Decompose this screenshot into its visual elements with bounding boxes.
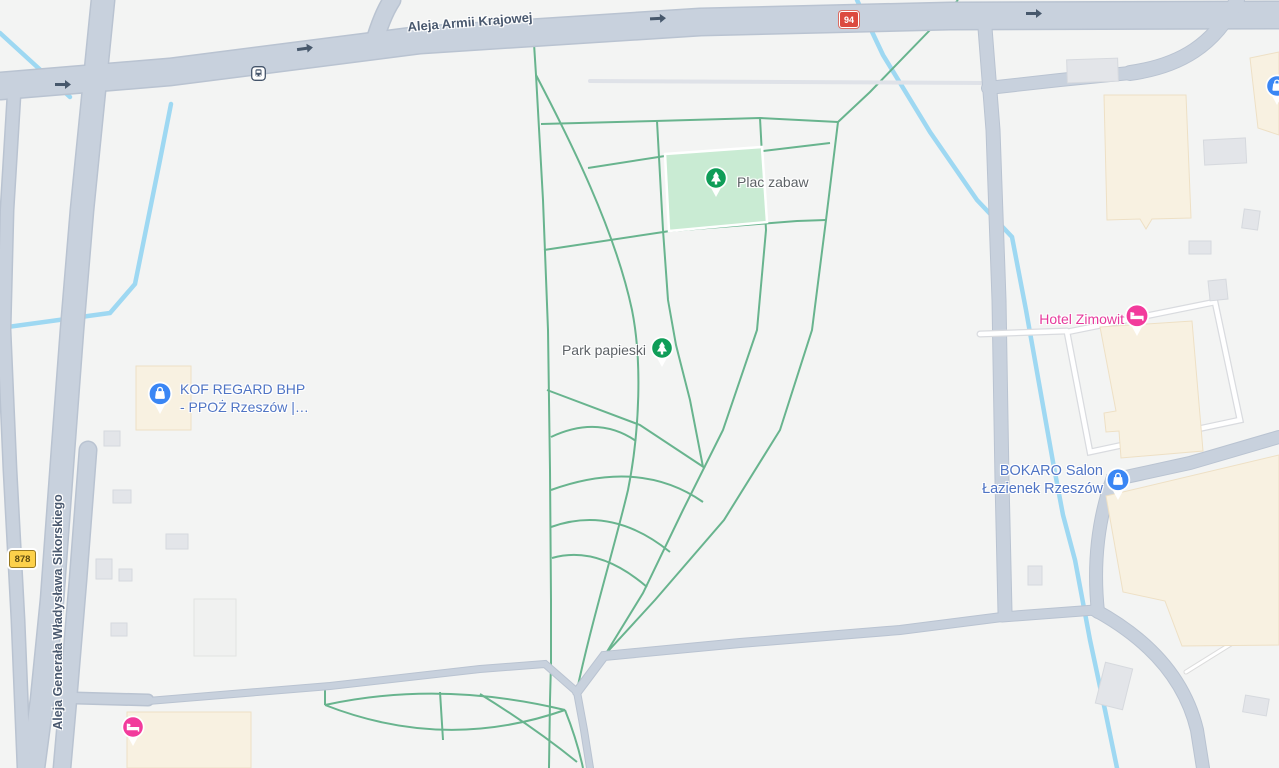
hotel-pin-unlabeled[interactable] <box>120 715 146 747</box>
poi-label-bokaro[interactable]: BOKARO Salon Łazienek Rzeszów <box>982 462 1103 498</box>
poi-label-line: BOKARO Salon <box>982 462 1103 480</box>
kof-regard-pin[interactable] <box>146 381 172 413</box>
poi-label-plac-zabaw[interactable]: Plac zabaw <box>737 174 809 190</box>
poi-label-kof-regard[interactable]: KOF REGARD BHP - PPOŻ Rzeszów |… <box>180 380 309 416</box>
bokaro-pin[interactable] <box>1104 467 1130 499</box>
park-papieski-pin[interactable] <box>649 336 675 368</box>
poi-label-line: KOF REGARD BHP <box>180 380 309 398</box>
poi-label-park-papieski[interactable]: Park papieski <box>562 342 646 358</box>
road-label-sikorskiego: Aleja Generała Władysława Sikorskiego <box>51 494 65 730</box>
poi-label-line: Łazienek Rzeszów <box>982 480 1103 498</box>
map-viewport[interactable]: Aleja Armii Krajowej Aleja Generała Wład… <box>0 0 1279 768</box>
poi-label-line: - PPOŻ Rzeszów |… <box>180 398 309 416</box>
poi-label-hotel-zimowit[interactable]: Hotel Zimowit <box>1039 311 1124 327</box>
shop-pin-edge[interactable] <box>1264 74 1279 106</box>
route-shield-94: 94 <box>839 11 859 28</box>
route-shield-878: 878 <box>9 550 36 568</box>
bus-stop-icon[interactable] <box>251 66 266 81</box>
railway-line <box>590 81 985 83</box>
playground-pin[interactable] <box>703 166 729 198</box>
hotel-zimowit-pin[interactable] <box>1123 303 1149 335</box>
